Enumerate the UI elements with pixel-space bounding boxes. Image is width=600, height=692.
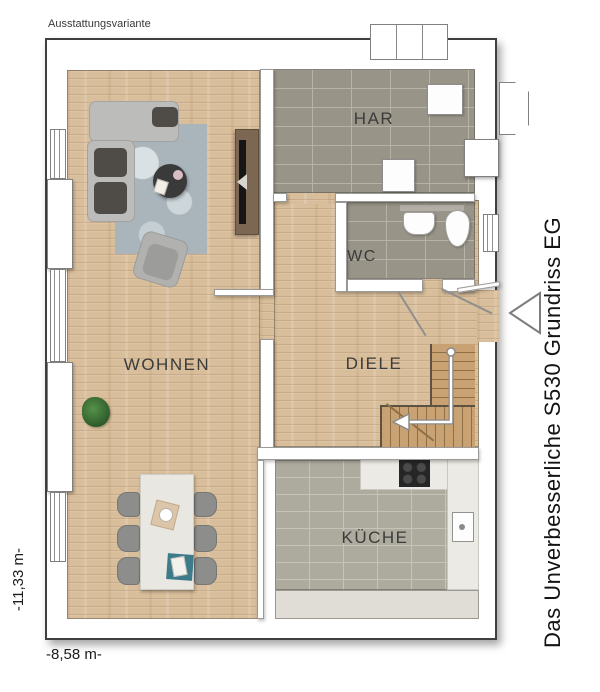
kueche-floor-margin [275,590,479,619]
sliding-door-leaf [214,289,274,296]
wall-diele-kueche [257,447,479,460]
window-element-left-1 [47,179,73,269]
plan-title: Das Unverbesserliche S530 Grundriss EG [540,158,566,648]
window-element-har [464,139,499,177]
dining-chair [194,492,217,517]
wohnen-diele-opening [260,295,274,340]
cooktop [399,459,430,487]
dining-chair [117,525,140,552]
har-appliance [427,84,463,115]
dining-chair [117,492,140,517]
wall-har-wc [335,193,475,202]
dining-chair [194,525,217,552]
dimension-height: -11,33 m- [10,548,27,611]
sink-faucet [459,524,465,530]
exterior-projection [499,82,529,135]
room-label-kueche: KÜCHE [341,528,408,548]
wall-essen-kueche [257,460,264,619]
wall-har-bottom [273,193,287,202]
table-plate [159,508,173,522]
sofa-cushion [94,182,127,214]
window-wc [483,214,499,252]
room-label-wohnen: WOHNEN [124,355,210,375]
window-left-1 [50,129,66,179]
entrance-recess [477,290,499,342]
dining-chair [194,557,217,585]
window-left-3 [50,492,66,562]
floorplan-canvas: Ausstattungsvariante [0,0,600,692]
wall-wohnen-diele [260,339,274,449]
entrance-arrow-icon [505,290,545,336]
coffee-table-bowl [173,170,183,180]
window-left-2 [50,269,66,362]
table-paper [170,556,187,577]
har-appliance [382,159,415,192]
plant [82,397,110,427]
room-label-wc: WC [347,248,377,266]
chimney [370,24,448,60]
room-label-diele: DIELE [346,354,403,374]
dining-chair [117,557,140,585]
room-label-har: HAR [354,109,394,129]
wall-wohnen-har [260,69,274,290]
sofa-cushion [94,148,127,177]
variant-label: Ausstattungsvariante [48,18,151,30]
wall-wc-bottom-left [347,279,423,292]
sofa-chaise-cushion [152,107,178,127]
floorplan-outline: HAR WC WOHNEN DIELE KÜCHE [45,38,497,640]
window-element-left-2 [47,362,73,492]
washbasin [403,212,435,235]
wall-wc-left [335,202,347,292]
dimension-width: -8,58 m- [46,646,102,663]
